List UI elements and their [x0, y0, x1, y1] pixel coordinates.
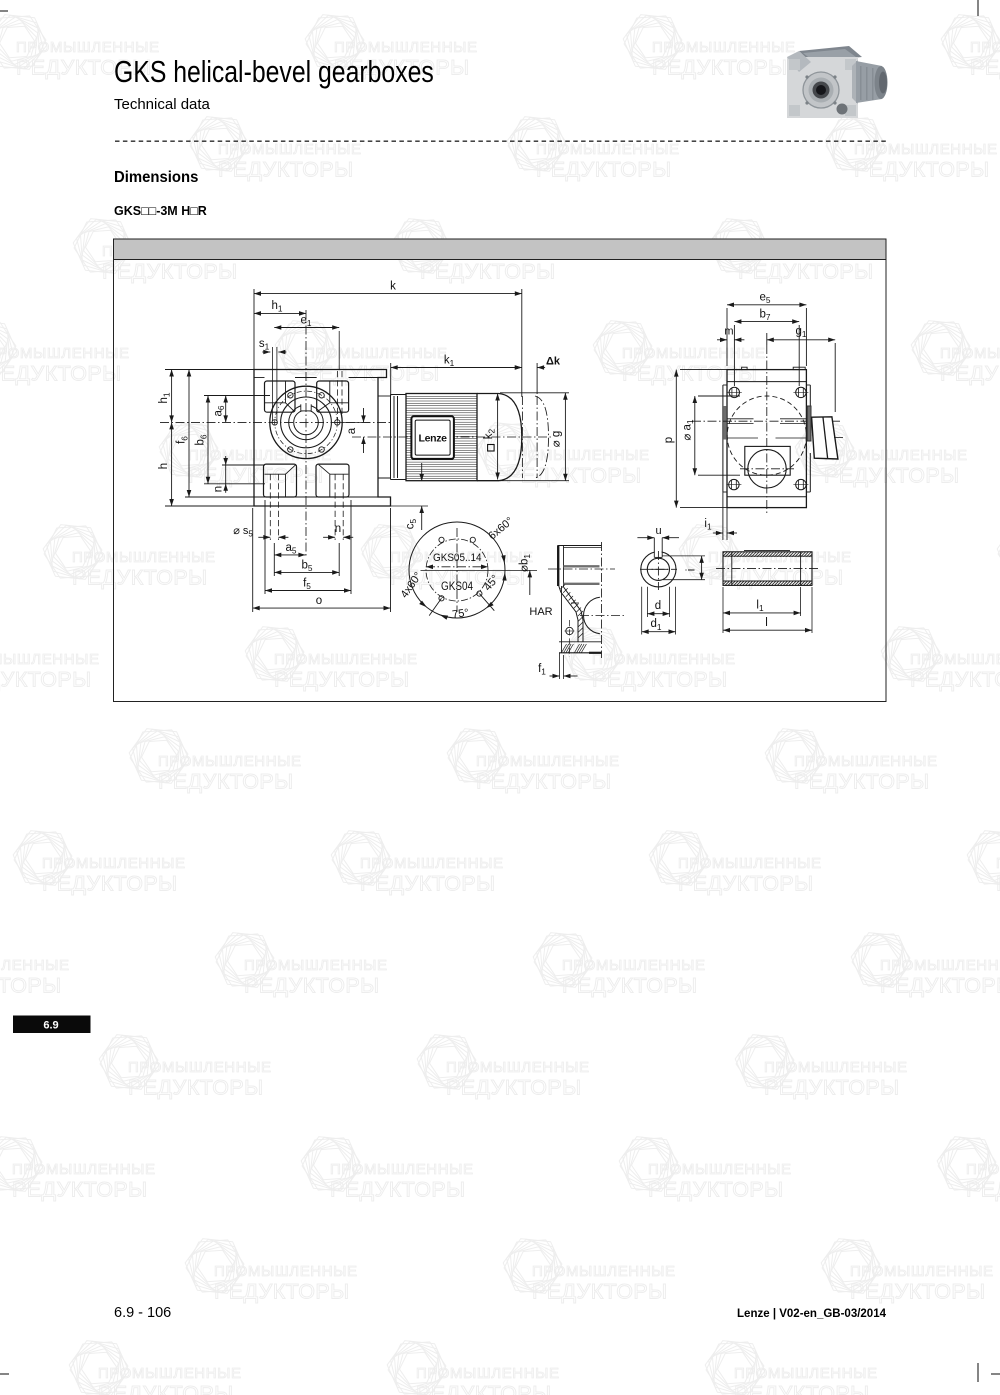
svg-text:a6: a6 — [212, 405, 226, 416]
svg-text:⌀ s5: ⌀ s5 — [233, 525, 253, 539]
svg-text:Δk: Δk — [546, 355, 561, 367]
svg-text:a5: a5 — [285, 542, 296, 556]
svg-text:f5: f5 — [303, 578, 311, 592]
svg-text:b6: b6 — [195, 434, 209, 445]
svg-text:Lenze: Lenze — [418, 433, 447, 445]
svg-text:l: l — [765, 617, 768, 629]
svg-text:i1: i1 — [704, 518, 712, 532]
svg-text:f1: f1 — [538, 663, 546, 677]
svg-text:b5: b5 — [301, 559, 312, 573]
svg-text:GKS05..14: GKS05..14 — [433, 552, 482, 564]
svg-text:d1: d1 — [650, 618, 661, 632]
svg-text:f6: f6 — [176, 436, 190, 444]
svg-text:⌀ g: ⌀ g — [550, 431, 562, 448]
svg-text:c5: c5 — [405, 518, 419, 529]
svg-text:p: p — [663, 437, 675, 443]
svg-text:4x60°: 4x60° — [399, 570, 425, 600]
svg-text:a: a — [346, 427, 358, 434]
svg-text:o: o — [316, 595, 322, 607]
svg-text:n: n — [335, 523, 341, 535]
svg-text:k2: k2 — [483, 428, 497, 439]
svg-text:b7: b7 — [759, 308, 770, 322]
svg-text:e1: e1 — [300, 314, 311, 328]
svg-text:m: m — [724, 326, 733, 338]
svg-text:⌀ a1: ⌀ a1 — [681, 419, 695, 441]
svg-text:i: i — [686, 569, 698, 572]
svg-text:6x60°: 6x60° — [486, 515, 515, 542]
svg-text:HAR: HAR — [529, 606, 552, 618]
svg-text:s1: s1 — [259, 338, 270, 352]
svg-text:k: k — [390, 281, 396, 293]
svg-text:GKS04: GKS04 — [441, 581, 474, 593]
svg-text:6.9: 6.9 — [43, 1020, 58, 1032]
svg-text:d: d — [655, 600, 661, 612]
svg-text:h: h — [158, 463, 170, 469]
svg-text:k1: k1 — [444, 354, 455, 368]
svg-text:⌀b1: ⌀b1 — [519, 554, 533, 572]
svg-text:h1: h1 — [158, 392, 172, 403]
svg-text:e5: e5 — [759, 292, 770, 306]
svg-text:l1: l1 — [756, 599, 764, 613]
svg-text:u: u — [655, 525, 661, 537]
svg-text:g1: g1 — [795, 326, 806, 340]
svg-text:h1: h1 — [271, 300, 282, 314]
svg-text:75°: 75° — [452, 607, 470, 621]
svg-text:n: n — [212, 486, 224, 492]
svg-text:45°: 45° — [482, 573, 502, 593]
